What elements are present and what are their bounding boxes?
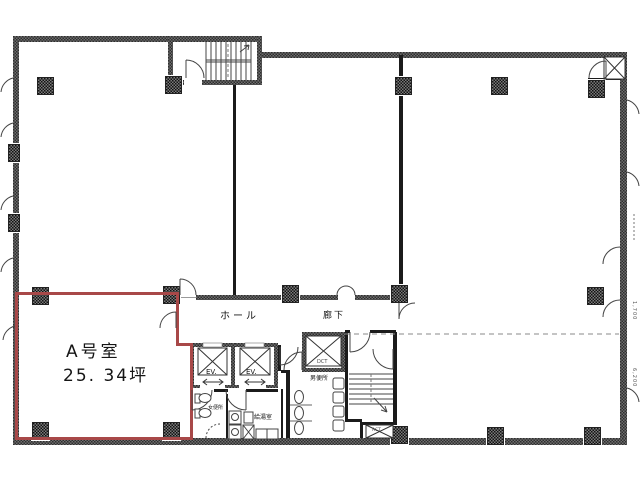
lower-stairs bbox=[349, 374, 393, 412]
column bbox=[492, 78, 507, 94]
column bbox=[33, 288, 48, 304]
ev-bank-bottom-3 bbox=[266, 385, 278, 388]
column bbox=[392, 427, 407, 443]
column bbox=[588, 288, 603, 304]
lobby-bottom-wall-2 bbox=[246, 389, 278, 392]
kitchenette-label: 給湯室 bbox=[254, 415, 272, 421]
elevator-2-label: EV. bbox=[246, 369, 257, 376]
hall-label: ホール bbox=[220, 312, 259, 322]
vestibule-wall bbox=[278, 345, 281, 371]
corridor-top-wall-left bbox=[298, 295, 338, 300]
lobby-bottom-wall-1 bbox=[214, 389, 228, 392]
column bbox=[396, 78, 411, 94]
ev-bank-mid-wall bbox=[231, 343, 235, 388]
wall-top-right bbox=[262, 52, 627, 58]
column bbox=[585, 428, 600, 444]
dimension-upper: 1,700 bbox=[631, 301, 637, 320]
corridor-top-wall-right bbox=[355, 295, 395, 300]
stair-top-wall-right bbox=[370, 330, 396, 333]
vent-label: ACT bbox=[372, 429, 381, 434]
hall-door-sill bbox=[178, 297, 196, 298]
mens-right-wall bbox=[345, 332, 348, 422]
column bbox=[589, 81, 604, 97]
womens-toilet-label: 女便所 bbox=[208, 406, 223, 411]
unit-a-area: 25. 34坪 bbox=[63, 368, 148, 385]
mens-left-wall bbox=[286, 372, 290, 438]
column bbox=[166, 77, 181, 93]
kitchen-right-wall bbox=[281, 389, 283, 438]
unit-a-outline-bottom bbox=[15, 437, 193, 440]
floor-plan: A号室 25. 34坪 ホール 廊下 EV. EV. DCT 男便所 女便所 給… bbox=[0, 0, 640, 480]
duct-shaft-left bbox=[302, 332, 306, 372]
womens-kitchen-divider bbox=[226, 394, 228, 438]
dimension-lower: 6,200 bbox=[631, 368, 637, 387]
stairwell-bottom-wall-right bbox=[202, 80, 262, 85]
wall-right bbox=[620, 52, 627, 445]
upper-stairs bbox=[206, 42, 251, 80]
dashed-boundary bbox=[345, 214, 634, 334]
mens-toilet-label: 男便所 bbox=[310, 376, 328, 382]
column bbox=[392, 286, 407, 302]
duct-label: DCT bbox=[317, 360, 327, 365]
stairwell-right-wall bbox=[257, 36, 262, 85]
wall-top-left bbox=[13, 36, 168, 42]
stair-top-wall-left bbox=[345, 330, 350, 333]
column bbox=[283, 286, 298, 302]
column bbox=[9, 145, 19, 161]
shaft-room-shelf bbox=[588, 78, 621, 80]
column bbox=[9, 215, 19, 231]
corridor-label: 廊下 bbox=[323, 312, 345, 321]
unit-a-outline-right-upper bbox=[176, 292, 179, 345]
unit-a-name: A号室 bbox=[66, 344, 121, 361]
hall-top-wall bbox=[196, 295, 283, 300]
duct-shaft-top bbox=[302, 332, 345, 336]
ev-bank-bottom-2 bbox=[225, 385, 239, 388]
stairwell-top-wall bbox=[168, 36, 262, 42]
unit-a-outline-top bbox=[15, 292, 178, 295]
column bbox=[488, 428, 503, 444]
partition-left-room bbox=[233, 85, 236, 295]
elevator-1-label: EV. bbox=[206, 369, 217, 376]
plan-annotations bbox=[0, 0, 640, 480]
vent-shaft-top bbox=[362, 422, 395, 425]
unit-a-outline-right-lower bbox=[190, 343, 193, 440]
duct-shaft-bottom bbox=[302, 368, 345, 372]
unit-a-outline-left bbox=[15, 292, 18, 440]
column bbox=[38, 78, 53, 94]
